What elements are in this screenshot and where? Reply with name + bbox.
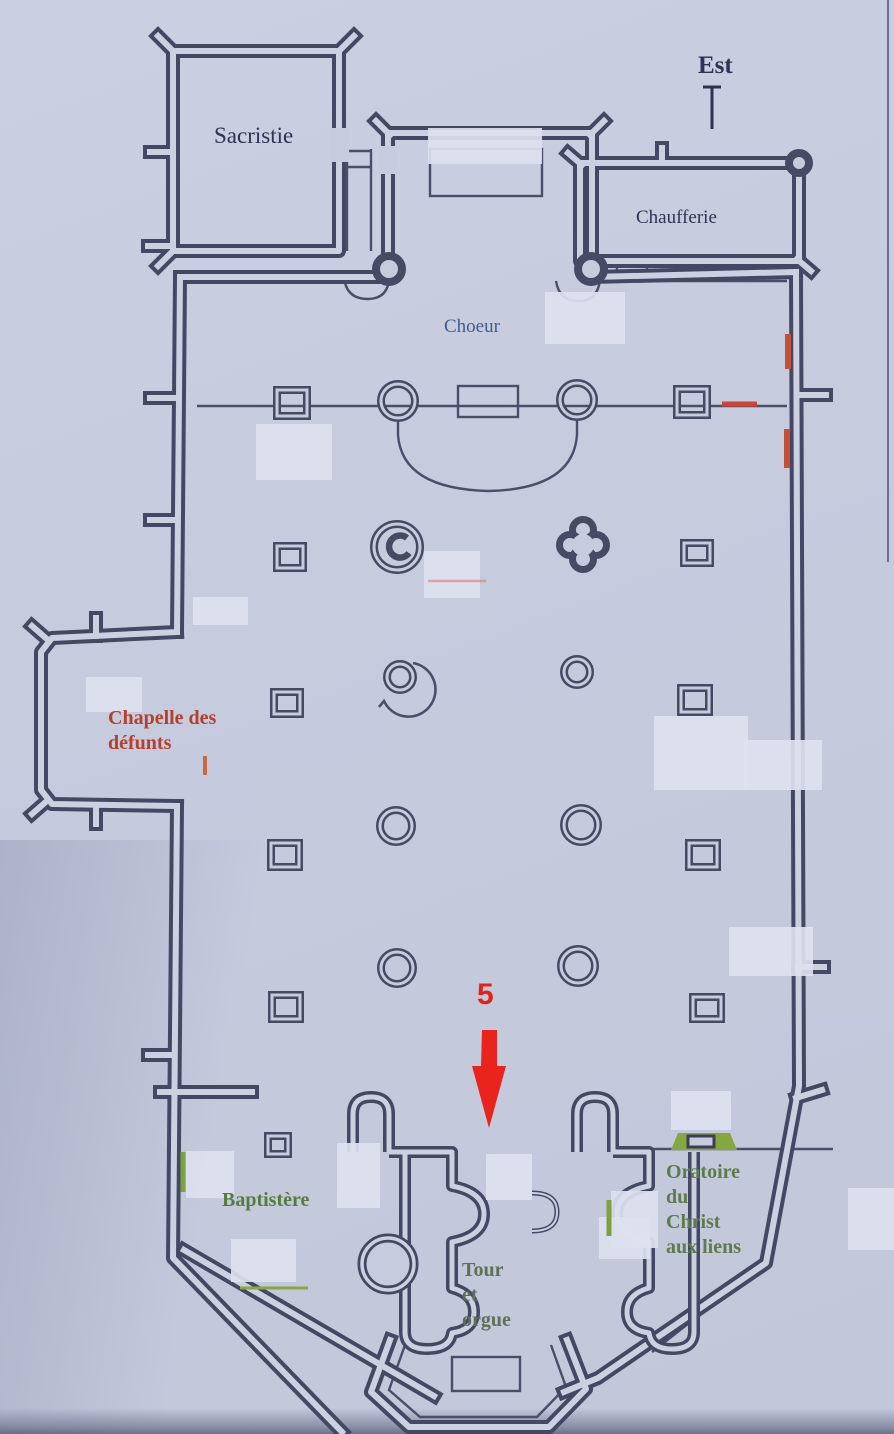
label-oratoire-line2: du: [666, 1185, 741, 1210]
label-oratoire: Oratoire du Christ aux liens: [666, 1160, 741, 1260]
annotation-number-5: 5: [477, 976, 494, 1014]
label-chapelle-line2: défunts: [108, 731, 216, 756]
chevet-door-gap: [379, 146, 397, 174]
columns-group: [268, 153, 809, 1154]
label-chapelle-defunts: Chapelle des défunts: [108, 706, 216, 756]
label-sacristie: Sacristie: [214, 122, 293, 151]
spiral-column: [374, 524, 420, 570]
label-oratoire-line4: aux liens: [666, 1235, 741, 1260]
chancel-pier-right: [578, 256, 604, 282]
label-choeur: Choeur: [444, 315, 500, 339]
sacristy-door-gap: [330, 128, 349, 162]
label-oratoire-line3: Christ: [666, 1210, 741, 1235]
pulpit-column: [379, 663, 435, 717]
scanned-floor-plan-page: { "document": { "type": "church-floor-pl…: [0, 0, 894, 1434]
label-tour-line1: Tour: [462, 1258, 511, 1283]
label-baptistere: Baptistère: [222, 1188, 309, 1213]
label-tour-orgue: Tour et orgue: [462, 1258, 511, 1333]
chancel-pier-left: [376, 256, 402, 282]
chaufferie-corner-pier: [789, 153, 809, 173]
label-est: Est: [698, 50, 733, 81]
red-down-arrow: [472, 1030, 506, 1128]
quatrefoil-column: [560, 520, 607, 570]
label-tour-line2: et: [462, 1283, 511, 1308]
label-oratoire-line1: Oratoire: [666, 1160, 741, 1185]
label-chapelle-line1: Chapelle des: [108, 706, 216, 731]
label-chaufferie: Chaufferie: [636, 206, 717, 230]
compass-marker: [703, 87, 721, 129]
green-altar-bench-icon: [671, 1133, 737, 1150]
label-tour-line3: orgue: [462, 1308, 511, 1333]
